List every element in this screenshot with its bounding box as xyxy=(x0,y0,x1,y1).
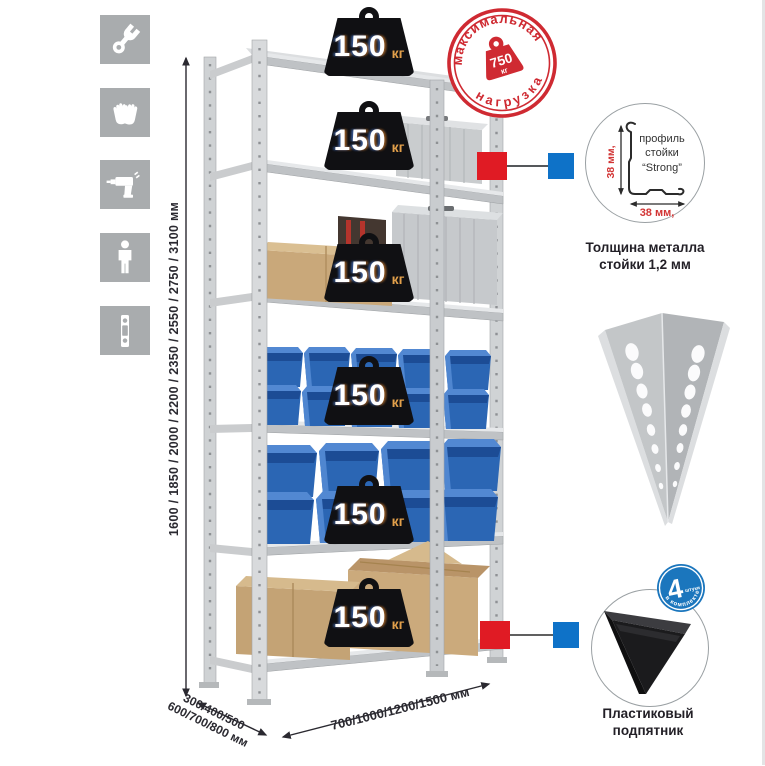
foot-caption-line1: Пластиковый xyxy=(578,705,718,722)
load-unit: кг xyxy=(392,616,405,632)
drill-icon xyxy=(100,160,150,209)
shelf-load-badge: 150кг xyxy=(324,589,414,647)
load-unit: кг xyxy=(392,513,405,529)
depth-dimensions-line2: 600/700/800 мм xyxy=(132,682,284,766)
person-icon xyxy=(100,233,150,282)
load-unit: кг xyxy=(392,139,405,155)
callout-marker-red-top xyxy=(477,152,507,180)
shelf-load-badge: 150кг xyxy=(324,244,414,302)
shelf-load-badge: 150кг xyxy=(324,18,414,76)
callout-marker-blue-top xyxy=(548,153,574,179)
callout-lines xyxy=(507,166,553,635)
svg-text:“Strong”: “Strong” xyxy=(642,162,682,174)
shelf-load-badge: 150кг xyxy=(324,112,414,170)
load-value: 150 xyxy=(334,256,387,290)
profile-caption-line1: Толщина металла xyxy=(575,239,715,256)
load-unit: кг xyxy=(392,45,405,61)
load-unit: кг xyxy=(392,394,405,410)
profile-caption-line2: стойки 1,2 мм xyxy=(575,256,715,273)
callout-marker-red-bottom xyxy=(480,621,510,649)
rack-post-front-right xyxy=(426,80,448,677)
width-dimensions: 700/1000/1200/1500 мм xyxy=(296,676,503,741)
profile-caption: Толщина металла стойки 1,2 мм xyxy=(575,239,715,273)
wrench-icon xyxy=(100,15,150,64)
load-value: 150 xyxy=(334,498,387,532)
gloves-icon xyxy=(100,88,150,137)
foot-caption: Пластиковый подпятник xyxy=(578,705,718,739)
depth-dimensions-line1: 300/400/500 xyxy=(138,670,290,754)
shelf-load-badge: 150кг xyxy=(324,367,414,425)
max-load-stamp: максимальная нагрузка 750 кг xyxy=(432,0,572,133)
profile-detail-circle: 38 мм, 38 мм, профиль стойки “Strong” xyxy=(585,103,705,223)
depth-dimensions: 300/400/500 600/700/800 мм xyxy=(132,670,290,766)
height-dimensions: 1600 / 1850 / 2000 / 2200 / 2350 / 2550 … xyxy=(167,59,181,679)
included-count-badge: 4 штуки в комплекте xyxy=(651,558,710,617)
foot-caption-line2: подпятник xyxy=(578,722,718,739)
load-value: 150 xyxy=(334,30,387,64)
rack-post-front-left xyxy=(247,40,271,705)
svg-text:стойки: стойки xyxy=(645,147,679,159)
load-value: 150 xyxy=(334,124,387,158)
profile-dim-vertical: 38 мм, xyxy=(605,145,617,178)
profile-dim-horizontal: 38 мм, xyxy=(640,207,675,219)
load-unit: кг xyxy=(392,271,405,287)
load-value: 150 xyxy=(334,379,387,413)
profile-label: профиль стойки “Strong” xyxy=(639,133,685,174)
corner-post-3d xyxy=(598,313,730,526)
svg-text:профиль: профиль xyxy=(639,133,685,145)
load-value: 150 xyxy=(334,601,387,635)
rack-post-back-left xyxy=(199,57,219,688)
product-infographic: { "colors": { "accent_red": "#d92b31", "… xyxy=(0,0,765,765)
shelf-load-badge: 150кг xyxy=(324,486,414,544)
callout-marker-blue-bottom xyxy=(553,622,579,648)
post-strip-icon xyxy=(100,306,150,355)
